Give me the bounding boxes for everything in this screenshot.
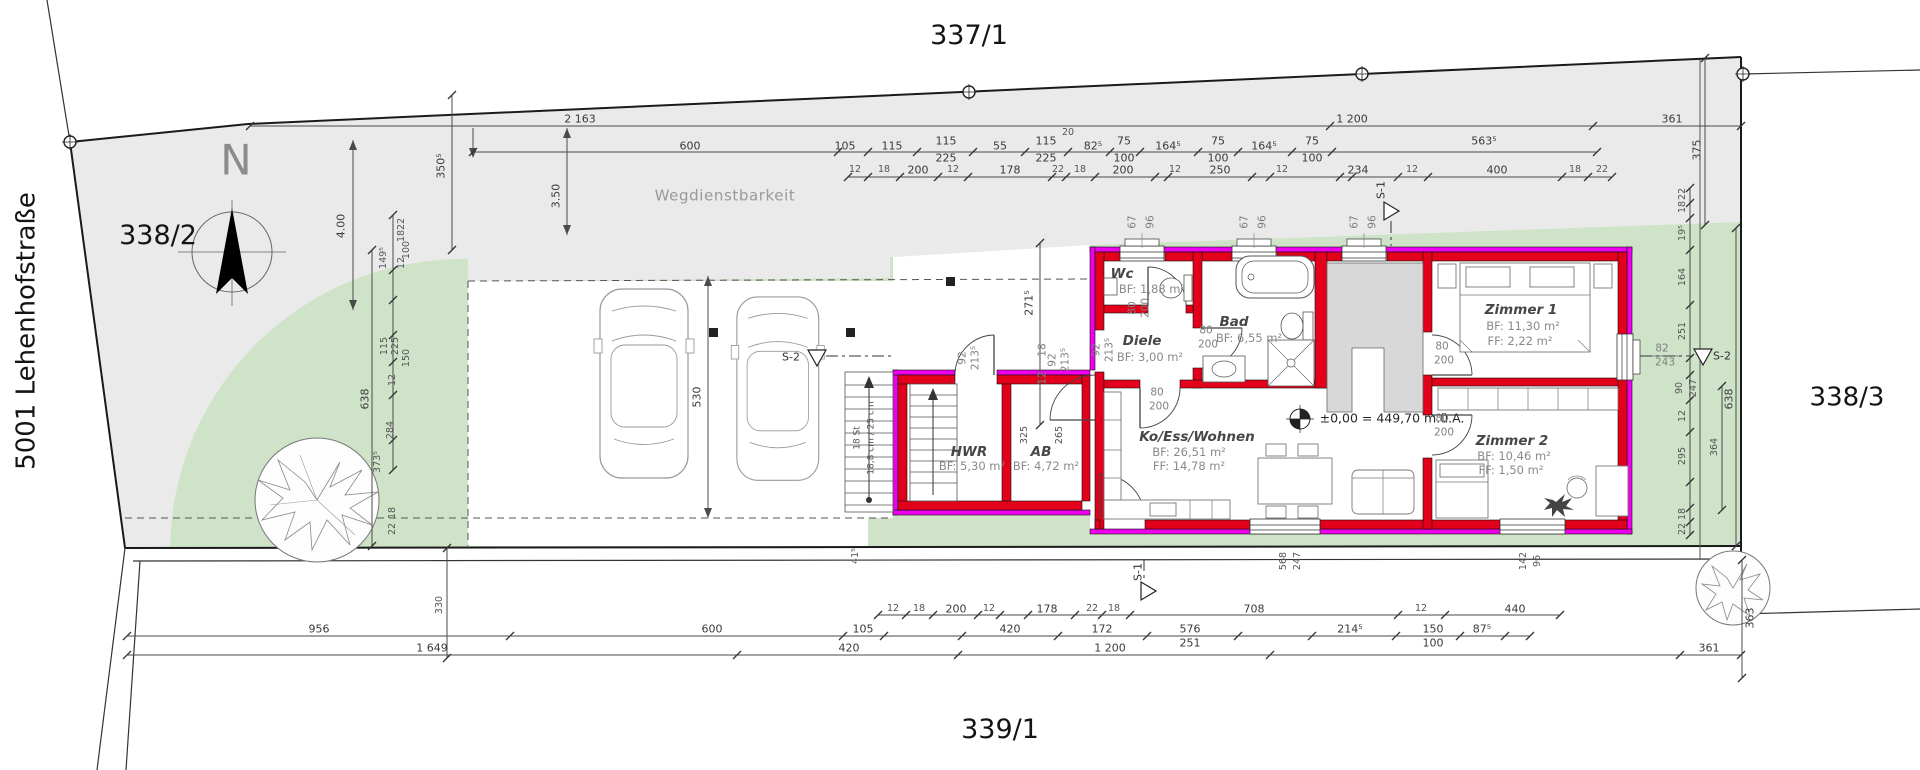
sofa <box>1352 470 1414 514</box>
car-1 <box>594 289 694 478</box>
north-yard-white-area <box>893 245 1090 372</box>
window-right <box>1617 334 1640 380</box>
interior-stair <box>910 384 957 501</box>
wc-sink <box>1104 278 1117 295</box>
wardrobe-row <box>1438 388 1618 410</box>
bed-zimmer2 <box>1436 460 1488 518</box>
vanity-sink <box>1203 356 1245 382</box>
site-plan-page: { "title": "Lageplan mit Erdgeschoss-Gru… <box>0 0 1920 770</box>
tree-large <box>255 438 379 562</box>
bed-zimmer1 <box>1438 263 1612 352</box>
s1-bottom-triangle <box>1141 582 1156 600</box>
window-bottom-1 <box>1250 519 1320 534</box>
tree-small <box>1696 551 1770 625</box>
bathtub <box>1236 256 1314 298</box>
window-bottom-2 <box>1500 519 1565 534</box>
exterior-stair <box>845 372 893 512</box>
site-plan-drawing <box>0 0 1920 770</box>
shower <box>1268 340 1314 386</box>
car-2 <box>731 297 824 480</box>
toilet-bad <box>1281 312 1313 340</box>
